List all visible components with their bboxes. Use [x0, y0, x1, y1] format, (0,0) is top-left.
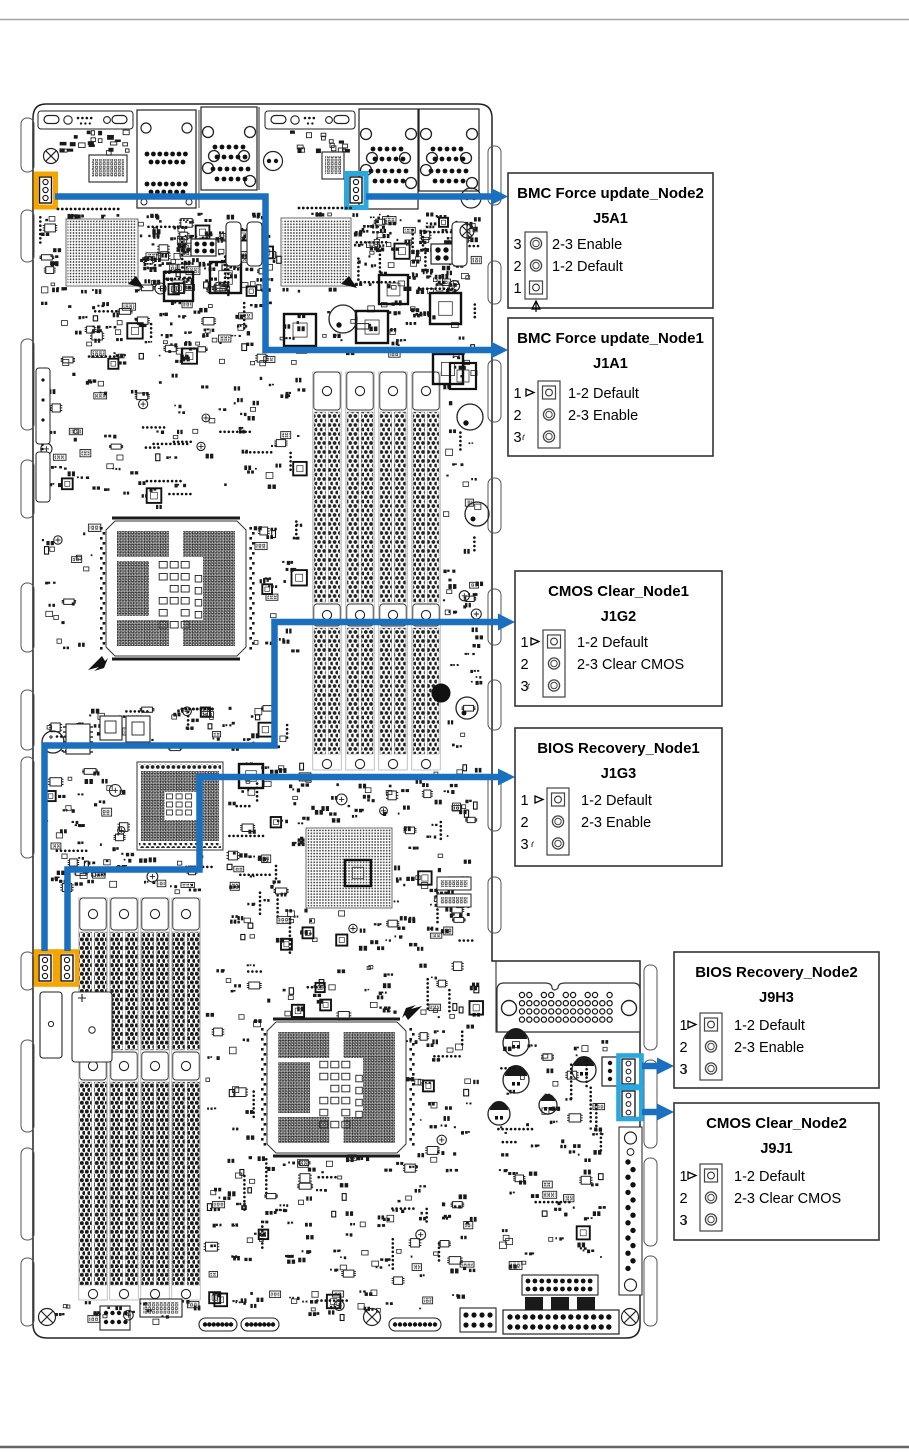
svg-text:2: 2 [514, 259, 522, 275]
svg-text:1-2 Default: 1-2 Default [552, 259, 623, 275]
svg-text:2: 2 [680, 1040, 688, 1056]
svg-text:2-3 Enable: 2-3 Enable [581, 815, 651, 831]
svg-text:J9H3: J9H3 [759, 990, 794, 1006]
svg-text:1: 1 [521, 793, 529, 809]
svg-text:2-3 Enable: 2-3 Enable [734, 1040, 804, 1056]
svg-text:2-3 Enable: 2-3 Enable [568, 408, 638, 424]
svg-text:BMC Force update_Node2: BMC Force update_Node2 [517, 185, 704, 202]
svg-text:1-2 Default: 1-2 Default [734, 1169, 805, 1185]
svg-text:BIOS Recovery_Node1: BIOS Recovery_Node1 [537, 740, 700, 757]
svg-text:2: 2 [514, 408, 522, 424]
svg-text:1-2 Default: 1-2 Default [734, 1018, 805, 1034]
svg-text:J1G2: J1G2 [601, 609, 636, 625]
svg-text:BMC Force update_Node1: BMC Force update_Node1 [517, 330, 704, 347]
svg-text:J5A1: J5A1 [593, 211, 628, 227]
svg-text:2: 2 [521, 657, 529, 673]
svg-text:2: 2 [521, 815, 529, 831]
svg-text:BIOS Recovery_Node2: BIOS Recovery_Node2 [695, 964, 858, 981]
svg-text:2-3 Enable: 2-3 Enable [552, 237, 622, 253]
svg-text:3: 3 [521, 679, 529, 695]
svg-text:3: 3 [514, 237, 522, 253]
svg-text:1-2 Default: 1-2 Default [577, 635, 648, 651]
svg-text:J1A1: J1A1 [593, 356, 628, 372]
svg-text:2-3 Clear CMOS: 2-3 Clear CMOS [577, 657, 684, 673]
svg-text:3: 3 [680, 1213, 688, 1229]
svg-text:1: 1 [514, 386, 522, 402]
svg-text:CMOS Clear_Node1: CMOS Clear_Node1 [548, 583, 689, 600]
svg-text:1: 1 [521, 635, 529, 651]
svg-text:2-3 Clear CMOS: 2-3 Clear CMOS [734, 1191, 841, 1207]
svg-text:1-2 Default: 1-2 Default [568, 386, 639, 402]
svg-text:J1G3: J1G3 [601, 766, 636, 782]
svg-text:CMOS Clear_Node2: CMOS Clear_Node2 [706, 1115, 847, 1132]
svg-text:1-2 Default: 1-2 Default [581, 793, 652, 809]
svg-text:1: 1 [680, 1169, 688, 1185]
svg-text:2: 2 [680, 1191, 688, 1207]
svg-text:1: 1 [514, 281, 522, 297]
svg-text:3: 3 [680, 1062, 688, 1078]
svg-text:3: 3 [514, 430, 522, 446]
svg-text:3: 3 [521, 837, 529, 853]
svg-text:1: 1 [680, 1018, 688, 1034]
svg-text:J9J1: J9J1 [760, 1141, 792, 1157]
